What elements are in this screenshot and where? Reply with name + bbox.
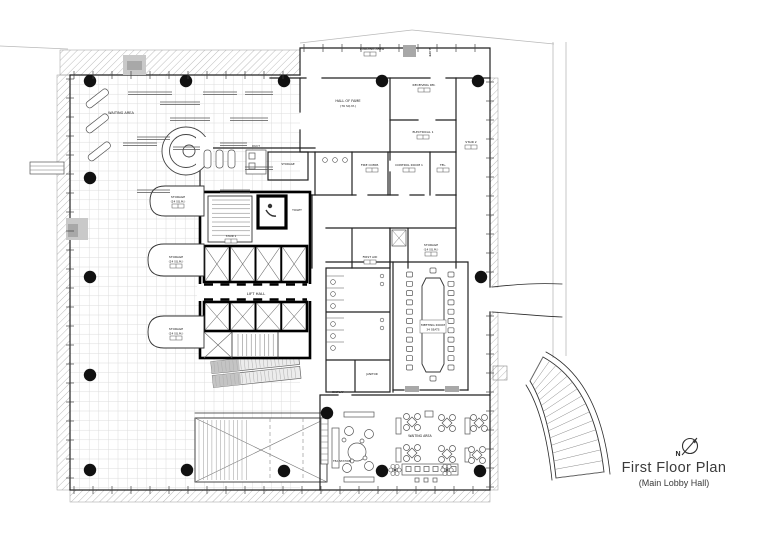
lift-core bbox=[197, 192, 313, 358]
title-block: N First Floor Plan (Main Lobby Hall) bbox=[622, 438, 727, 488]
room-label-meeting-seats: 34 SEATS bbox=[426, 328, 439, 332]
room-label-toilet: TOILET bbox=[291, 208, 302, 212]
room-label-hall-of-fame: HALL OF FAME bbox=[335, 99, 360, 103]
diagonal-benches bbox=[85, 88, 112, 163]
dumbwaiter bbox=[392, 230, 406, 246]
room-label-receiving: RECEIVING RM. bbox=[413, 83, 436, 87]
plan-title: First Floor Plan bbox=[622, 460, 727, 476]
room-label-fire-comm: FIRE COMM. bbox=[361, 163, 379, 167]
room-label-storage-lobby: STORAGE bbox=[281, 162, 295, 166]
room-label-electrical: ELECTRICAL 1 bbox=[412, 130, 433, 134]
curved-canopy bbox=[526, 352, 610, 480]
room-label-janitor: JANITOR bbox=[365, 372, 378, 376]
room-label-first-aid: FIRST AID bbox=[363, 255, 378, 259]
waiting-area-furniture bbox=[321, 411, 488, 482]
room-label-stair2: STAIR 2 bbox=[465, 140, 476, 144]
stair-void-well bbox=[195, 413, 327, 482]
room-label-storage1: STORAGE bbox=[171, 195, 185, 199]
room-label-display: DISPLAY bbox=[332, 390, 344, 394]
room-label-stair1: STAIR 1 bbox=[226, 234, 237, 238]
room-label-waiting-upper: WAITING AREA bbox=[108, 111, 134, 115]
room-label-meeting: MEETING ROOM bbox=[421, 323, 445, 327]
room-label-hall-of-fame-area: (76 SQ.M.) bbox=[340, 104, 356, 108]
room-label-storage1-area: (24 SQ.M.) bbox=[171, 200, 186, 204]
floor-plan-canvas: WAITING AREA HALL OF FAME (76 SQ.M.) LOA… bbox=[0, 0, 768, 543]
room-label-tel: TEL. bbox=[439, 163, 446, 167]
room-label-storage-service-area: (14 SQ.M.) bbox=[424, 248, 439, 252]
room-label-storage2: STORAGE bbox=[169, 255, 183, 259]
room-label-lift-hall: LIFT HALL bbox=[247, 291, 266, 296]
link-bridge bbox=[492, 284, 562, 317]
room-label-storage3-area: (24 SQ.M.) bbox=[169, 332, 184, 336]
room-label-duct: DUCT bbox=[252, 144, 260, 148]
room-label-storage2-area: (24 SQ.M.) bbox=[169, 260, 184, 264]
room-label-control-room: CONTROL ROOM 1 bbox=[395, 163, 423, 167]
north-label: N bbox=[675, 451, 680, 458]
room-label-tea-station: TEA STATION bbox=[332, 459, 351, 463]
room-label-loading-area: LOADING AREA bbox=[360, 47, 385, 51]
toilet-fixtures bbox=[323, 158, 384, 351]
room-label-waiting-lower: WAITING AREA bbox=[408, 434, 432, 438]
room-label-storage3: STORAGE bbox=[169, 327, 183, 331]
turnstiles bbox=[204, 150, 266, 174]
plan-subtitle: (Main Lobby Hall) bbox=[639, 478, 710, 488]
room-label-slope: SLOPE bbox=[428, 47, 432, 57]
room-label-storage-service: STORAGE bbox=[424, 243, 438, 247]
north-arrow: N bbox=[675, 438, 697, 458]
